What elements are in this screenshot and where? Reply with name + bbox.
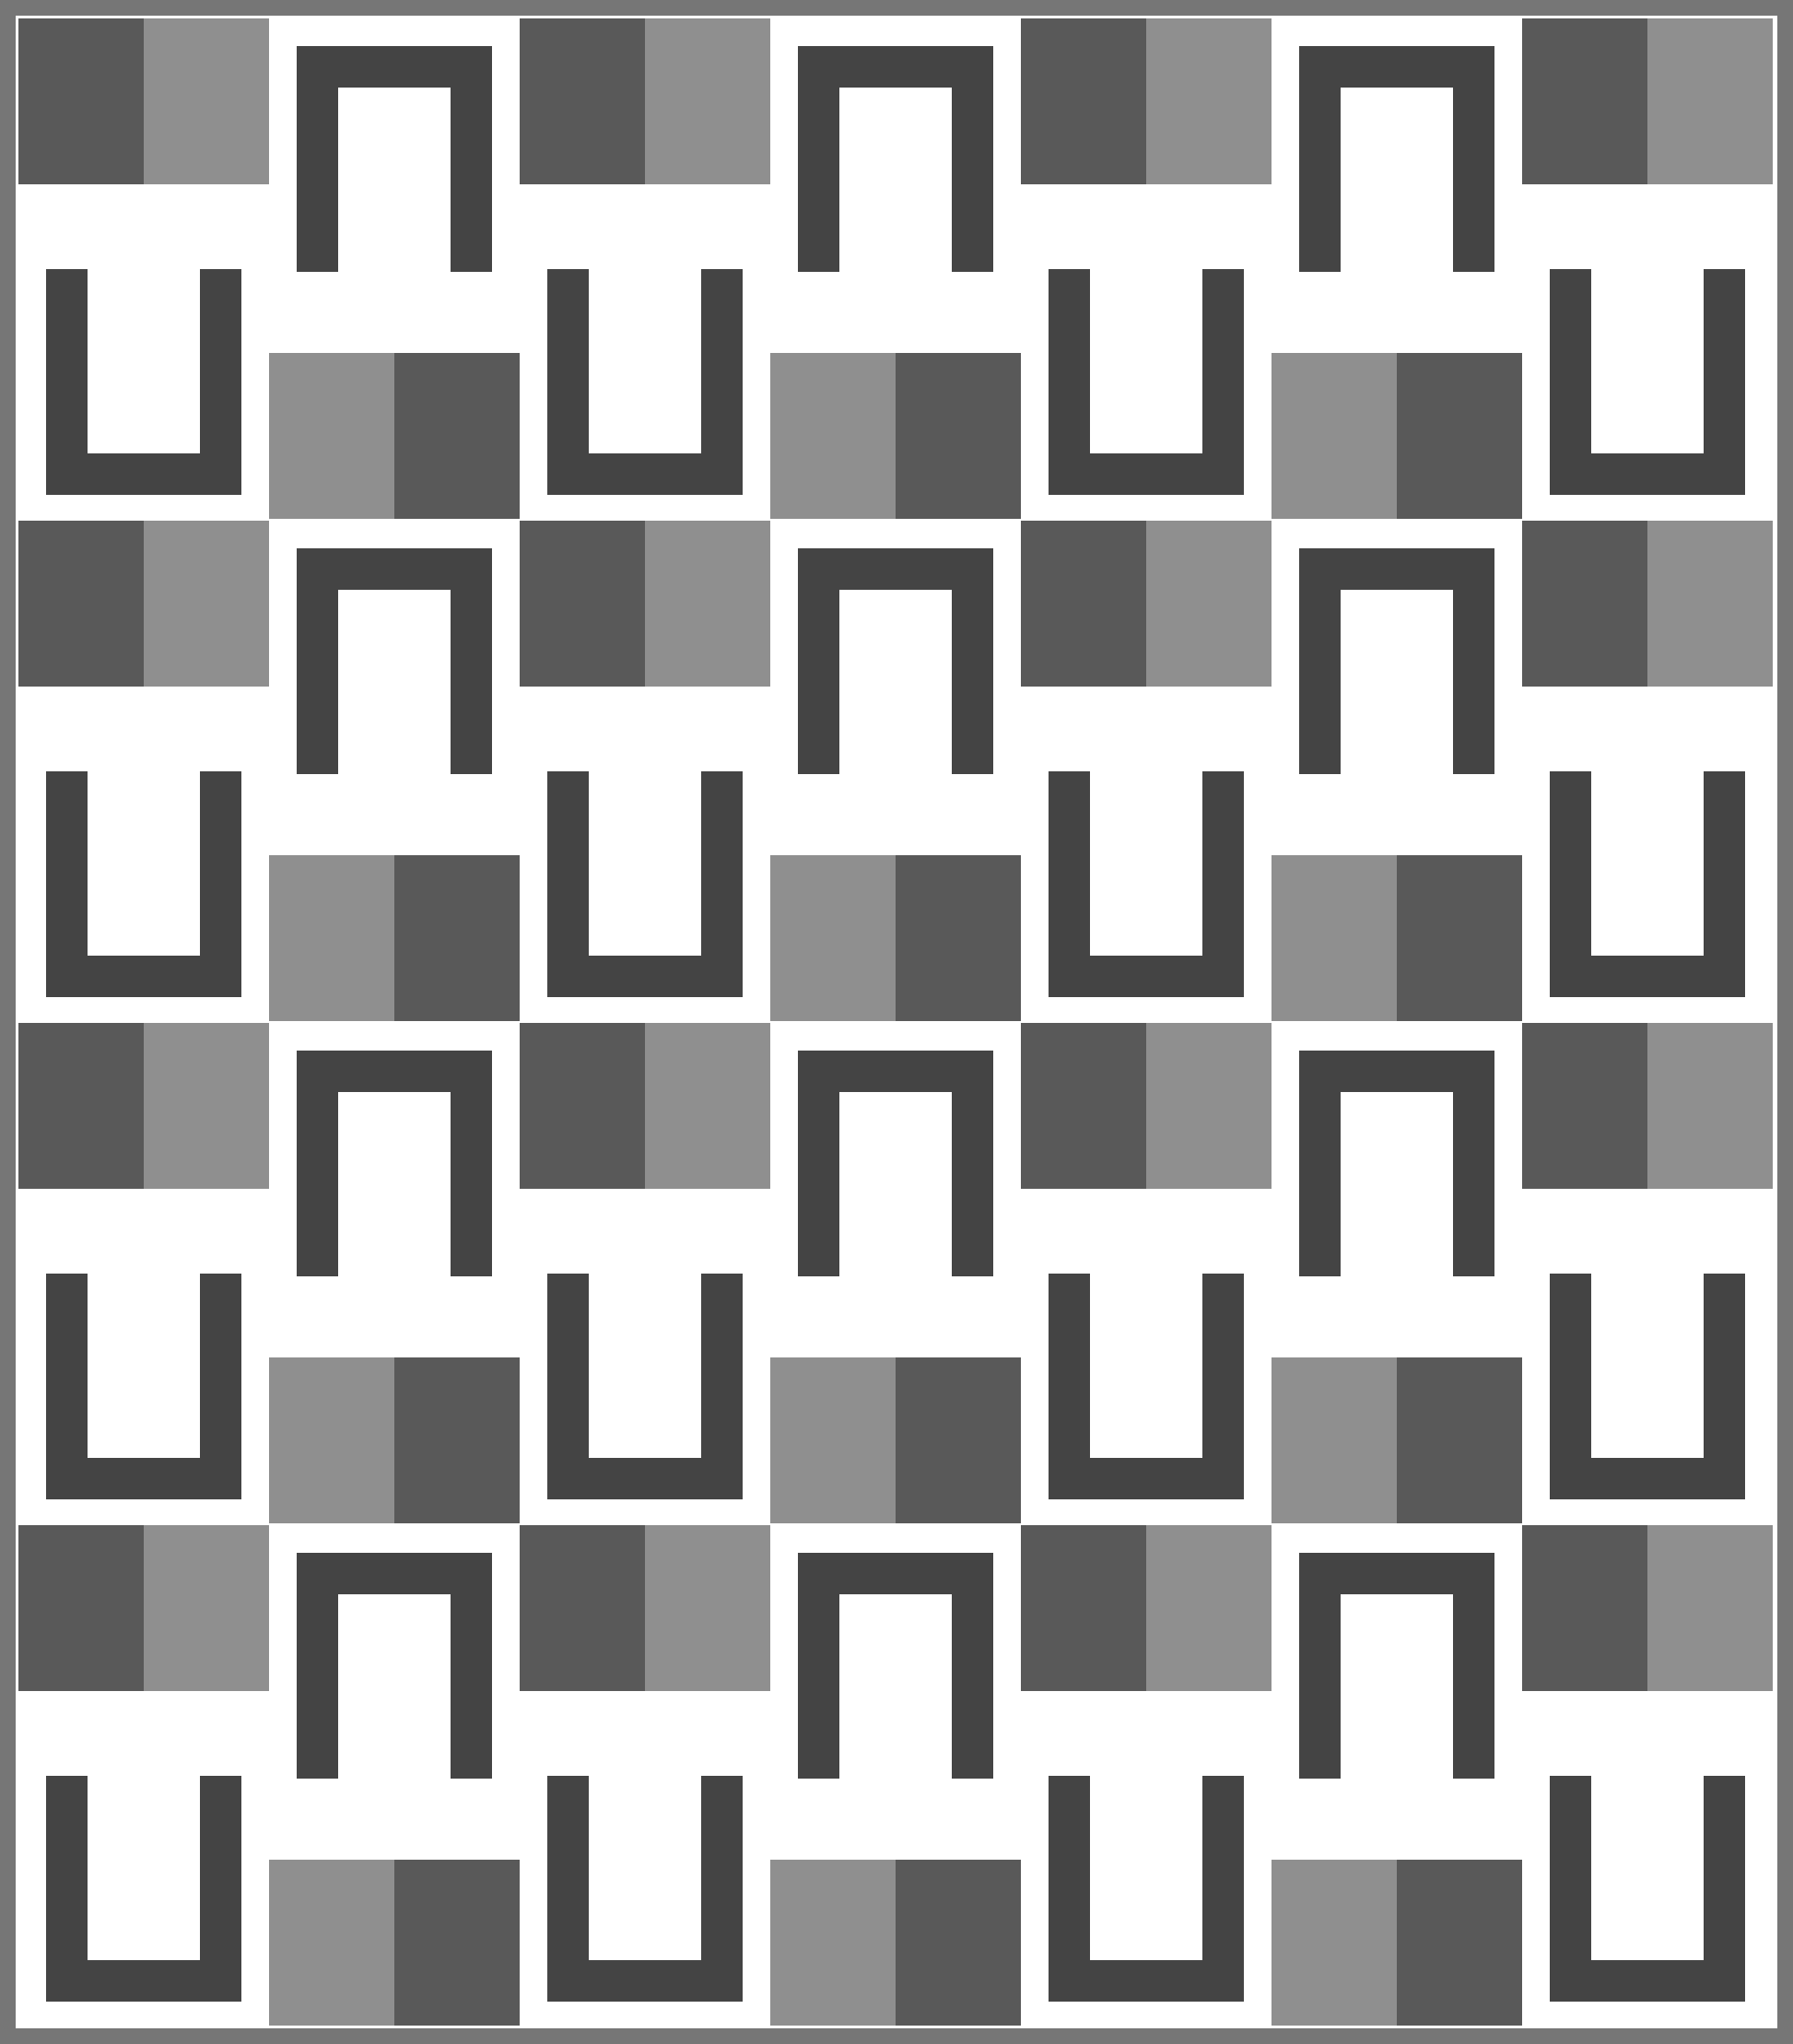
rect-dark-half <box>520 18 645 184</box>
two-tone-rect <box>18 18 269 184</box>
rect-light-half <box>770 1357 896 1523</box>
rect-light-half <box>770 1860 896 2026</box>
n-left-bar <box>297 548 338 774</box>
rect-dark-half <box>394 855 520 1021</box>
two-tone-rect <box>1272 1860 1522 2026</box>
rect-dark-half <box>394 1860 520 2026</box>
u-bottom-bar <box>547 956 743 997</box>
rect-light-half <box>1146 1525 1272 1691</box>
rect-dark-half <box>18 1023 144 1189</box>
n-left-bar <box>798 548 839 774</box>
two-tone-rect <box>770 855 1021 1021</box>
two-tone-rect <box>770 1357 1021 1523</box>
two-tone-rect <box>1522 1525 1773 1691</box>
rect-dark-half <box>18 18 144 184</box>
u-shape <box>46 1274 241 1499</box>
two-tone-rect <box>1021 521 1272 687</box>
u-shape <box>1550 1776 1745 2002</box>
two-tone-rect <box>1522 18 1773 184</box>
rect-light-half <box>144 521 269 687</box>
u-bottom-bar <box>1550 956 1745 997</box>
n-left-bar <box>297 1553 338 1779</box>
two-tone-rect <box>520 18 770 184</box>
rect-dark-half <box>1397 1357 1522 1523</box>
u-shape <box>1550 1274 1745 1499</box>
n-left-bar <box>1299 1553 1341 1779</box>
n-left-bar <box>1299 548 1341 774</box>
n-left-bar <box>798 1553 839 1779</box>
n-left-bar <box>297 46 338 272</box>
n-right-bar <box>952 46 993 272</box>
u-shape <box>547 1776 743 2002</box>
two-tone-rect <box>18 1023 269 1189</box>
rect-dark-half <box>520 1023 645 1189</box>
n-right-bar <box>451 46 492 272</box>
rect-dark-half <box>896 855 1021 1021</box>
n-left-bar <box>798 1051 839 1276</box>
rect-dark-half <box>18 521 144 687</box>
two-tone-rect <box>770 1860 1021 2026</box>
n-shape <box>297 548 492 774</box>
two-tone-rect <box>520 521 770 687</box>
two-tone-rect <box>1272 1357 1522 1523</box>
rect-dark-half <box>1021 1525 1146 1691</box>
u-shape <box>1550 771 1745 997</box>
rect-light-half <box>1647 1525 1773 1691</box>
rect-dark-half <box>1522 521 1647 687</box>
rect-light-half <box>1146 1023 1272 1189</box>
rect-dark-half <box>896 1860 1021 2026</box>
rect-dark-half <box>520 1525 645 1691</box>
two-tone-rect <box>269 353 520 519</box>
two-tone-rect <box>269 855 520 1021</box>
u-bottom-bar <box>547 453 743 495</box>
u-shape <box>547 771 743 997</box>
n-right-bar <box>952 1051 993 1276</box>
n-shape <box>1299 1051 1494 1276</box>
rect-light-half <box>645 18 770 184</box>
rect-dark-half <box>1397 855 1522 1021</box>
rect-light-half <box>144 18 269 184</box>
rect-dark-half <box>1522 18 1647 184</box>
rect-light-half <box>1272 855 1397 1021</box>
two-tone-rect <box>770 353 1021 519</box>
two-tone-rect <box>520 1023 770 1189</box>
rect-light-half <box>1647 521 1773 687</box>
rect-dark-half <box>520 521 645 687</box>
two-tone-rect <box>520 1525 770 1691</box>
rect-dark-half <box>394 353 520 519</box>
n-right-bar <box>952 548 993 774</box>
rect-light-half <box>645 1023 770 1189</box>
rect-dark-half <box>1021 521 1146 687</box>
u-shape <box>1049 1274 1244 1499</box>
n-right-bar <box>1453 1051 1494 1276</box>
two-tone-rect <box>1021 1525 1272 1691</box>
n-right-bar <box>451 1553 492 1779</box>
u-shape <box>1049 1776 1244 2002</box>
two-tone-rect <box>1522 521 1773 687</box>
n-right-bar <box>1453 46 1494 272</box>
n-right-bar <box>1453 1553 1494 1779</box>
n-right-bar <box>451 1051 492 1276</box>
n-shape <box>1299 548 1494 774</box>
two-tone-rect <box>1272 353 1522 519</box>
rect-light-half <box>1272 353 1397 519</box>
u-bottom-bar <box>1049 453 1244 495</box>
two-tone-rect <box>1021 1023 1272 1189</box>
u-bottom-bar <box>46 956 241 997</box>
n-right-bar <box>451 548 492 774</box>
u-shape <box>547 269 743 495</box>
rect-dark-half <box>896 353 1021 519</box>
u-bottom-bar <box>547 1458 743 1499</box>
rect-light-half <box>269 353 394 519</box>
rect-dark-half <box>1021 18 1146 184</box>
rect-dark-half <box>1522 1023 1647 1189</box>
n-shape <box>297 1051 492 1276</box>
u-shape <box>1049 771 1244 997</box>
rect-light-half <box>1647 1023 1773 1189</box>
u-bottom-bar <box>1550 1960 1745 2002</box>
u-bottom-bar <box>1550 1458 1745 1499</box>
rect-dark-half <box>18 1525 144 1691</box>
n-shape <box>1299 1553 1494 1779</box>
u-shape <box>46 1776 241 2002</box>
n-right-bar <box>952 1553 993 1779</box>
rect-light-half <box>770 855 896 1021</box>
u-bottom-bar <box>1049 956 1244 997</box>
rect-dark-half <box>1397 353 1522 519</box>
u-shape <box>1550 269 1745 495</box>
n-shape <box>798 46 993 272</box>
rect-light-half <box>645 1525 770 1691</box>
rect-dark-half <box>1397 1860 1522 2026</box>
n-shape <box>798 1051 993 1276</box>
quilt-pattern-canvas <box>0 0 1793 2044</box>
u-bottom-bar <box>547 1960 743 2002</box>
two-tone-rect <box>18 521 269 687</box>
n-right-bar <box>1453 548 1494 774</box>
two-tone-rect <box>1021 18 1272 184</box>
rect-light-half <box>1146 18 1272 184</box>
u-shape <box>1049 269 1244 495</box>
rect-light-half <box>144 1525 269 1691</box>
rect-dark-half <box>1021 1023 1146 1189</box>
u-bottom-bar <box>46 1960 241 2002</box>
n-shape <box>297 46 492 272</box>
rect-light-half <box>1146 521 1272 687</box>
rect-light-half <box>1647 18 1773 184</box>
n-shape <box>798 548 993 774</box>
rect-light-half <box>1272 1860 1397 2026</box>
two-tone-rect <box>269 1860 520 2026</box>
n-left-bar <box>297 1051 338 1276</box>
two-tone-rect <box>1522 1023 1773 1189</box>
rect-dark-half <box>1522 1525 1647 1691</box>
u-bottom-bar <box>46 1458 241 1499</box>
u-shape <box>46 269 241 495</box>
u-shape <box>547 1274 743 1499</box>
rect-light-half <box>269 1860 394 2026</box>
u-bottom-bar <box>1550 453 1745 495</box>
n-left-bar <box>1299 1051 1341 1276</box>
rect-dark-half <box>394 1357 520 1523</box>
two-tone-rect <box>1272 855 1522 1021</box>
u-bottom-bar <box>46 453 241 495</box>
n-shape <box>798 1553 993 1779</box>
u-shape <box>46 771 241 997</box>
rect-light-half <box>269 855 394 1021</box>
rect-light-half <box>770 353 896 519</box>
n-shape <box>1299 46 1494 272</box>
u-bottom-bar <box>1049 1960 1244 2002</box>
two-tone-rect <box>18 1525 269 1691</box>
two-tone-rect <box>269 1357 520 1523</box>
rect-light-half <box>144 1023 269 1189</box>
n-left-bar <box>798 46 839 272</box>
rect-light-half <box>269 1357 394 1523</box>
rect-light-half <box>1272 1357 1397 1523</box>
n-shape <box>297 1553 492 1779</box>
rect-light-half <box>645 521 770 687</box>
n-left-bar <box>1299 46 1341 272</box>
rect-dark-half <box>896 1357 1021 1523</box>
u-bottom-bar <box>1049 1458 1244 1499</box>
